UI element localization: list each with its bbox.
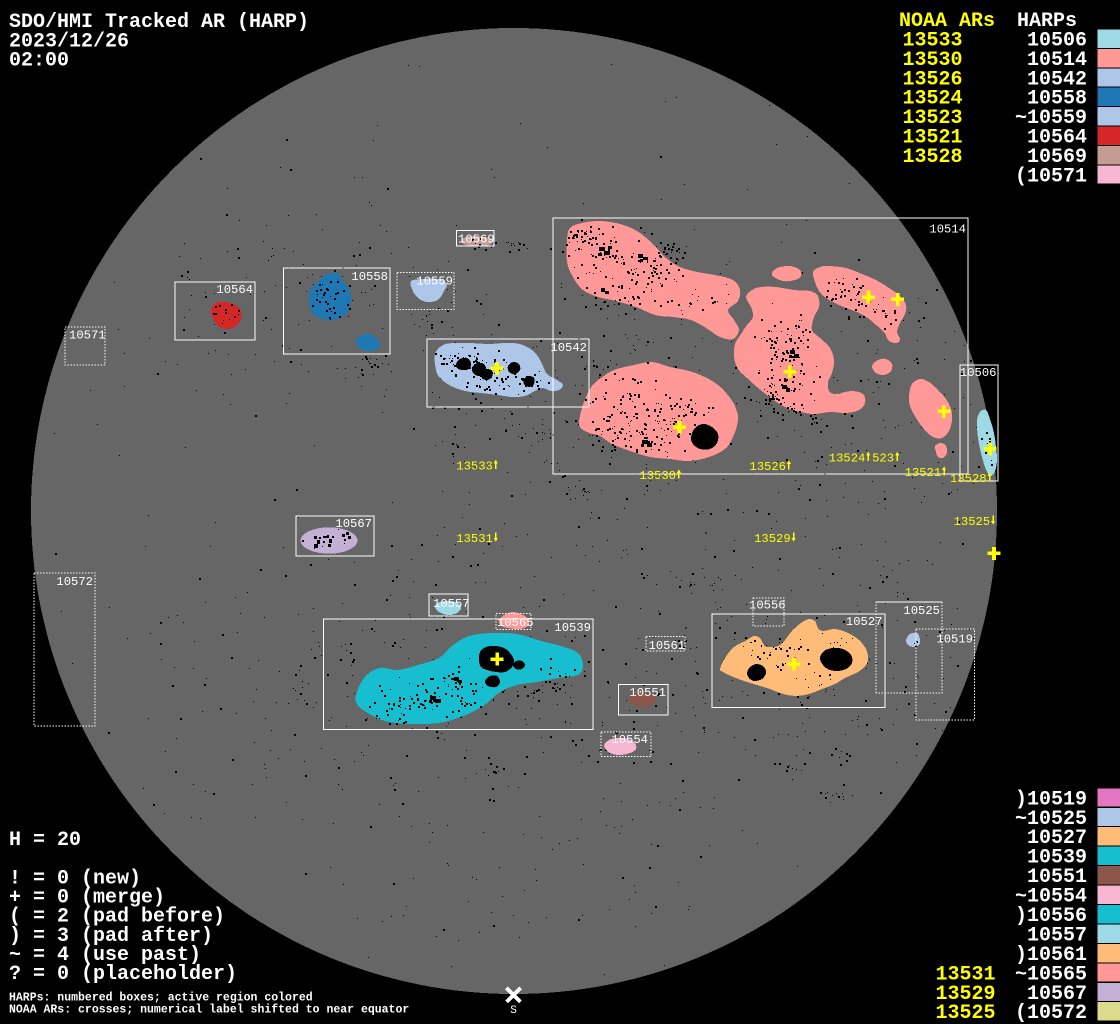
svg-text:(10572: (10572 (1015, 1002, 1087, 1024)
svg-text:S: S (510, 1005, 517, 1017)
svg-text:? = 0 (placeholder): ? = 0 (placeholder) (9, 963, 237, 986)
svg-text:10561: 10561 (649, 639, 686, 653)
svg-text:10569: 10569 (458, 233, 495, 247)
svg-text:(10571: (10571 (1015, 165, 1087, 188)
svg-text:13526: 13526 (749, 460, 786, 474)
svg-text:10567: 10567 (335, 517, 372, 531)
svg-text:10571: 10571 (69, 329, 106, 343)
svg-text:10558: 10558 (351, 270, 388, 284)
svg-text:02:00: 02:00 (9, 50, 69, 73)
svg-text:10514: 10514 (929, 223, 966, 237)
svg-text:13530: 13530 (639, 469, 676, 483)
svg-text:10525: 10525 (903, 604, 940, 618)
svg-text:10572: 10572 (56, 575, 93, 589)
svg-text:13524: 13524 (829, 452, 866, 466)
svg-text:13521: 13521 (905, 466, 942, 480)
svg-text:10542: 10542 (550, 341, 587, 355)
svg-text:13528: 13528 (903, 146, 963, 169)
svg-text:10519: 10519 (936, 633, 973, 647)
svg-text:10559: 10559 (416, 275, 453, 289)
svg-text:10557: 10557 (433, 597, 470, 611)
svg-text:H = 20: H = 20 (9, 829, 81, 852)
svg-text:10556: 10556 (749, 599, 786, 613)
svg-text:13525: 13525 (954, 515, 991, 529)
svg-text:10551: 10551 (629, 686, 666, 700)
svg-text:13529: 13529 (754, 532, 791, 546)
svg-text:13533: 13533 (456, 460, 493, 474)
svg-text:10554: 10554 (611, 733, 648, 747)
svg-text:10564: 10564 (216, 283, 253, 297)
svg-text:13531: 13531 (456, 532, 493, 546)
svg-text:13528: 13528 (950, 472, 987, 486)
svg-text:NOAA ARs: crosses; numerical l: NOAA ARs: crosses; numerical label shift… (9, 1004, 409, 1017)
svg-text:10565: 10565 (497, 616, 534, 630)
svg-text:10539: 10539 (554, 621, 591, 635)
svg-text:10527: 10527 (846, 615, 883, 629)
svg-text:13525: 13525 (936, 1002, 996, 1024)
svg-text:10506: 10506 (960, 366, 997, 380)
svg-text:523: 523 (872, 452, 894, 466)
